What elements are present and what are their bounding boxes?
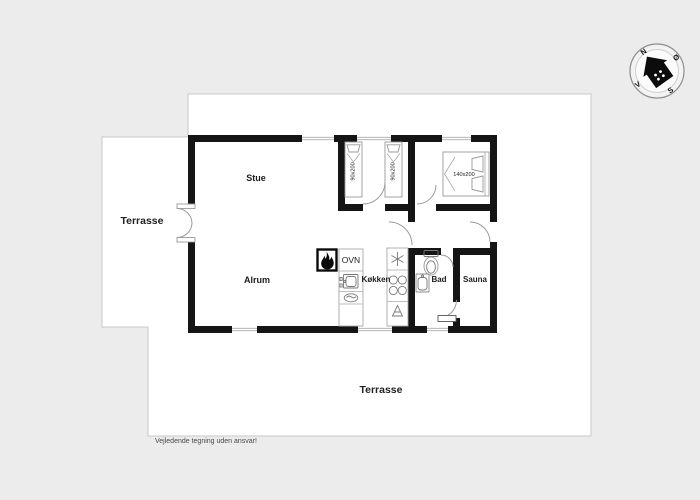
kitchen-counter-west: OVN [339,249,363,326]
bed-single-1: 90x200 [345,142,362,197]
room-label-bad: Bad [431,275,446,284]
floor-plan-svg: 90x200 90x200 140x200 OVN [0,0,700,500]
bed-size-label: 90x200 [351,162,357,180]
wall-bad-west [408,248,415,326]
pillow [347,145,360,152]
room-label-kokken: Køkken [362,275,391,284]
wall-bad-sauna-divider [453,248,460,302]
wall-bedrooms-south-1 [338,204,363,211]
bed-size-label: 140x200 [453,172,474,178]
pillow [472,176,483,192]
terrace-label-south: Terrasse [359,384,402,396]
floor-plan-page: 90x200 90x200 140x200 OVN [0,0,700,500]
bed-double: 140x200 [443,152,489,196]
window [357,135,391,142]
pillow [387,145,400,152]
bed-size-label: 90x200 [391,162,397,180]
window [232,326,257,333]
door-leaf [177,204,195,209]
door-leaf [177,238,195,243]
fireplace [318,250,337,271]
room-label-alrum: Alrum [244,275,270,285]
oven-label: OVN [342,255,360,265]
window [427,326,448,333]
window [442,135,471,142]
room-label-sauna: Sauna [463,275,488,284]
window [358,326,392,333]
wall-bedroom-partition [408,142,415,222]
door-opening-east [490,222,497,242]
compass-rose: N Ø S V [620,33,695,109]
room-label-stue: Stue [246,173,266,183]
disclaimer-text: Vejledende tegning uden ansvar! [155,438,257,445]
bed-single-2: 90x200 [385,142,402,197]
pillow [472,156,483,172]
window [302,135,334,142]
wall-bad-north [415,248,441,255]
door-leaf-sauna [438,316,456,322]
bathroom-sink-icon [416,274,429,292]
wall-bedrooms-south-2 [385,204,408,211]
wall-bedrooms-south-3 [436,204,490,211]
terrace-label-west: Terrasse [120,215,163,227]
wall-stue-bedroom [338,142,345,211]
kitchen-counter-east [387,248,408,326]
